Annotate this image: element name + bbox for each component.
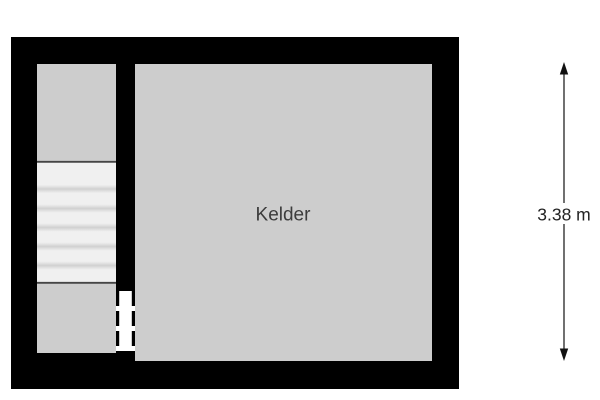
svg-text:3.38 m: 3.38 m — [537, 205, 591, 225]
svg-text:Kelder: Kelder — [256, 205, 312, 226]
